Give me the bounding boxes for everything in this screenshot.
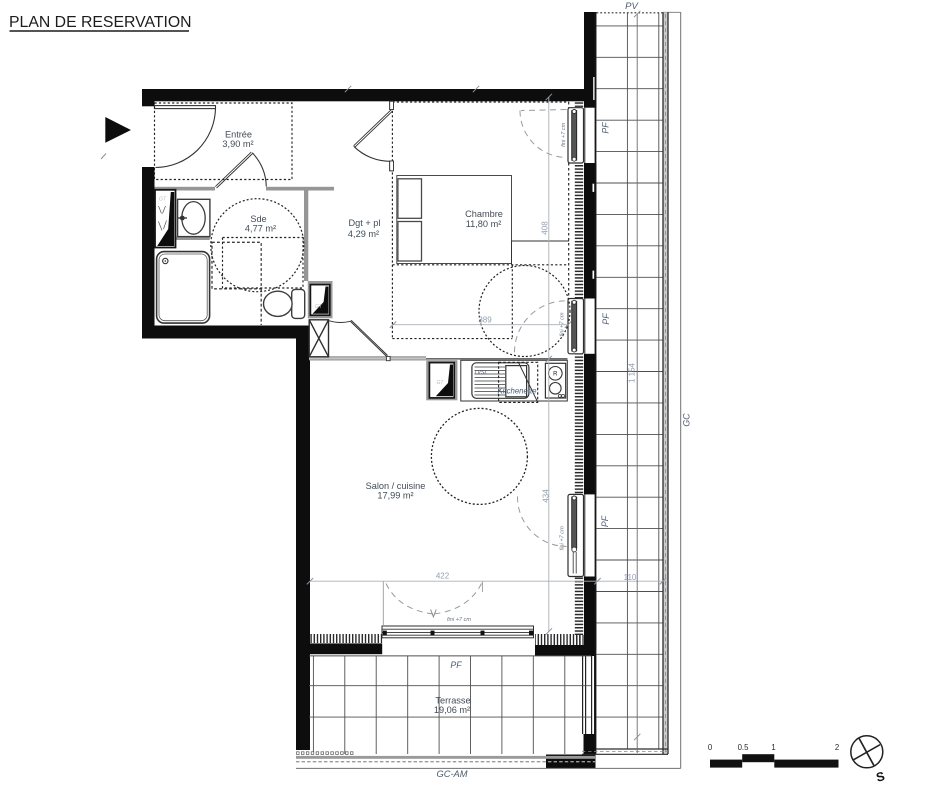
- svg-text:4,77 m²: 4,77 m²: [245, 224, 276, 234]
- svg-text:PLAN DE RESERVATION: PLAN DE RESERVATION: [9, 14, 192, 31]
- svg-text:110: 110: [624, 573, 637, 582]
- svg-text:PF: PF: [601, 122, 611, 134]
- svg-text:GC-AM: GC-AM: [437, 769, 468, 779]
- svg-text:R: R: [553, 372, 558, 378]
- svg-text:3,90 m²: 3,90 m²: [222, 139, 253, 149]
- svg-text:0: 0: [708, 743, 713, 752]
- svg-text:Sde: Sde: [250, 214, 266, 224]
- svg-text:GT: GT: [437, 380, 445, 386]
- svg-text:434: 434: [542, 489, 551, 503]
- svg-text:0.5: 0.5: [738, 743, 750, 752]
- svg-text:11,80 m²: 11,80 m²: [466, 219, 502, 229]
- svg-text:2: 2: [835, 743, 839, 752]
- svg-text:fini +7 cm: fini +7 cm: [447, 617, 471, 623]
- svg-text:1 154: 1 154: [628, 362, 637, 383]
- svg-text:Kitchenette: Kitchenette: [497, 386, 537, 395]
- svg-text:PF: PF: [601, 313, 611, 325]
- svg-text:fini +7 cm: fini +7 cm: [560, 312, 566, 336]
- svg-text:PV: PV: [625, 1, 639, 12]
- svg-text:408: 408: [541, 221, 550, 235]
- svg-text:PF: PF: [450, 660, 462, 670]
- svg-text:Dgt + pl: Dgt + pl: [349, 218, 381, 228]
- svg-text:1: 1: [771, 743, 775, 752]
- svg-text:LVSL: LVSL: [475, 370, 488, 376]
- svg-text:fini +7 cm: fini +7 cm: [561, 122, 567, 146]
- svg-text:389: 389: [478, 316, 492, 325]
- svg-text:fini +7 cm: fini +7 cm: [559, 526, 565, 550]
- svg-text:19,06 m²: 19,06 m²: [434, 705, 470, 715]
- svg-text:PF: PF: [600, 515, 610, 527]
- svg-text:GT: GT: [315, 304, 323, 310]
- svg-text:17,99 m²: 17,99 m²: [377, 490, 413, 500]
- svg-text:422: 422: [436, 572, 450, 581]
- svg-text:4,29 m²: 4,29 m²: [348, 229, 379, 239]
- svg-text:Chambre: Chambre: [465, 209, 503, 219]
- svg-text:GT: GT: [159, 197, 167, 203]
- svg-text:GC: GC: [681, 413, 691, 427]
